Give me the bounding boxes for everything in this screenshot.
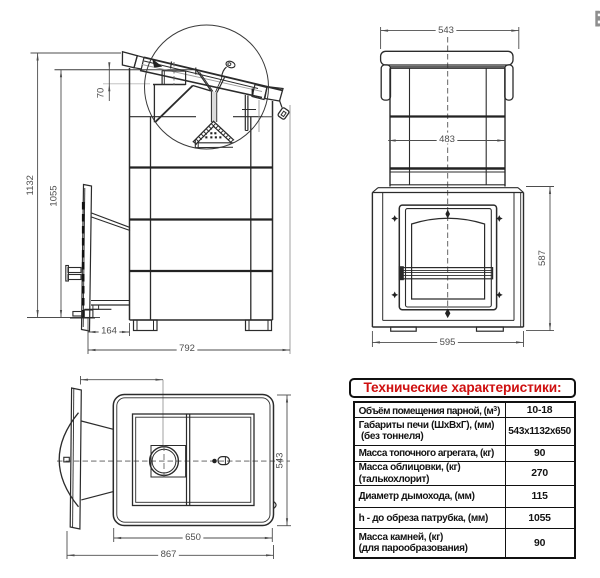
- svg-text:70: 70: [96, 88, 107, 99]
- svg-text:1132: 1132: [25, 175, 36, 195]
- svg-text:1055: 1055: [49, 185, 60, 206]
- svg-text:483: 483: [439, 134, 455, 145]
- svg-text:595: 595: [440, 337, 456, 348]
- svg-text:543: 543: [438, 25, 454, 36]
- svg-text:650: 650: [185, 532, 201, 543]
- svg-text:164: 164: [101, 325, 117, 336]
- svg-text:543: 543: [275, 453, 286, 469]
- svg-text:792: 792: [179, 343, 195, 354]
- svg-text:587: 587: [537, 250, 548, 266]
- svg-text:867: 867: [161, 549, 177, 560]
